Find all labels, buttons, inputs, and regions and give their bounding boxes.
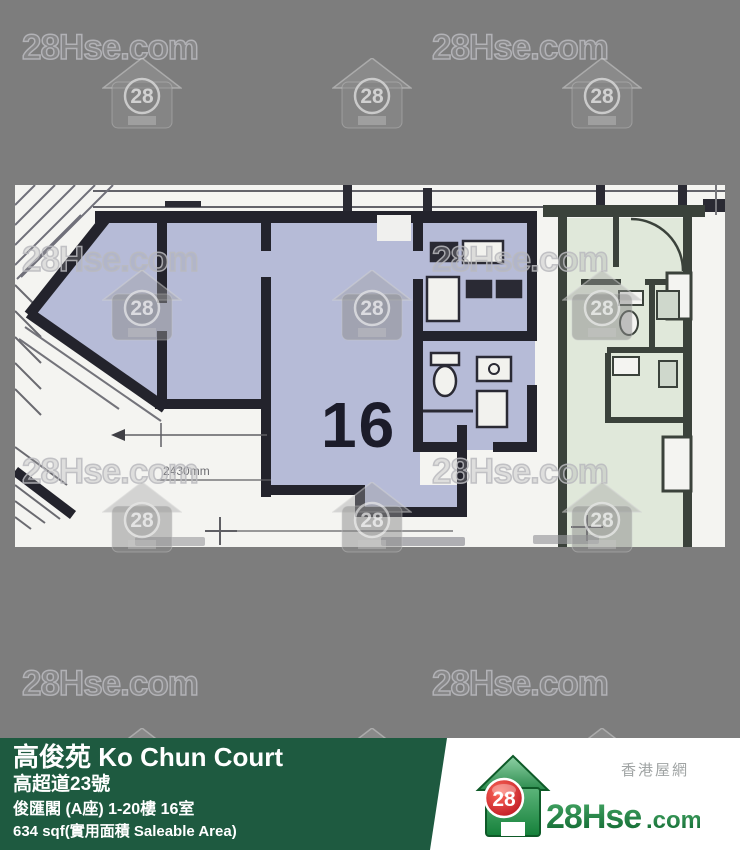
lightwell-notch-lower bbox=[663, 437, 691, 491]
building-name: 高俊苑 Ko Chun Court bbox=[13, 742, 460, 772]
logo-tagline: 香港屋網 bbox=[621, 759, 689, 780]
floor-plan-image: 16 bbox=[15, 185, 725, 547]
caption-bar: 高俊苑 Ko Chun Court 高超道23號 俊匯閣 (A座) 1-20樓 … bbox=[0, 738, 740, 850]
property-info-panel: 高俊苑 Ko Chun Court 高超道23號 俊匯閣 (A座) 1-20樓 … bbox=[0, 738, 460, 850]
unit-number-label: 16 bbox=[321, 389, 396, 461]
watermark-text: 28Hse.com bbox=[22, 664, 198, 704]
logo-site-name: 28Hse bbox=[546, 798, 641, 836]
watermark-house-icon bbox=[332, 58, 412, 130]
watermark-text: 28Hse.com bbox=[432, 664, 608, 704]
logo-badge: 28 bbox=[492, 788, 516, 811]
bedroom bbox=[163, 221, 263, 407]
floor-plan-svg: 16 bbox=[15, 185, 725, 547]
window-recess bbox=[377, 215, 411, 241]
page: { "watermark": { "brand": "28Hse.com", "… bbox=[0, 0, 740, 850]
logo-house-icon: 28 bbox=[478, 756, 548, 836]
watermark-house-icon bbox=[562, 58, 642, 130]
watermark-house-icon bbox=[102, 58, 182, 130]
watermark-text: 28Hse.com bbox=[22, 28, 198, 68]
block-floor-unit: 俊匯閣 (A座) 1-20樓 16室 bbox=[13, 799, 460, 820]
watermark-text: 28Hse.com bbox=[432, 28, 608, 68]
building-address: 高超道23號 bbox=[13, 773, 460, 797]
dimension-label: 2430mm bbox=[163, 464, 210, 478]
adjacent-unit bbox=[543, 205, 705, 547]
logo-site-tld: .com bbox=[646, 807, 700, 834]
saleable-area: 634 sqf(實用面積 Saleable Area) bbox=[13, 822, 460, 842]
